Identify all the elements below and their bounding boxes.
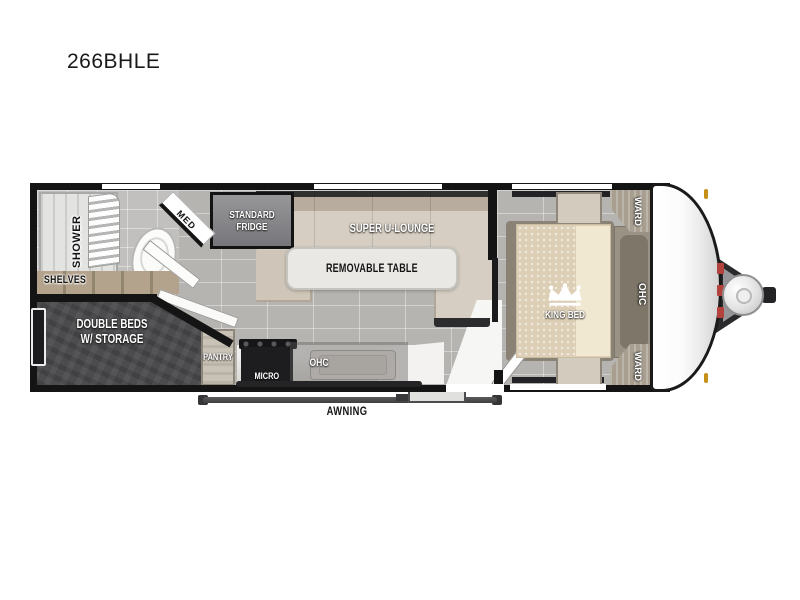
window-top-bedroom (512, 184, 612, 189)
fridge-label: STANDARD FRIDGE (225, 209, 280, 233)
double-beds-label-line1: DOUBLE BEDS (62, 317, 162, 332)
floorplan-canvas: 266BHLE MED SHOWER SHELVES STANDARD FRID… (0, 0, 800, 600)
bedroom-partition-wall (488, 190, 497, 260)
awning-label: AWNING (312, 404, 382, 418)
double-beds-label-line2: W/ STORAGE (62, 332, 162, 347)
window-bottom-bedroom (510, 384, 606, 390)
bedroom-sliding-door (492, 258, 498, 322)
wardrobe-top-label: WARD (629, 193, 643, 231)
double-beds-label: DOUBLE BEDS W/ STORAGE (62, 317, 162, 347)
kitchen-ohc-label: OHC (301, 357, 337, 369)
shower-label: SHOWER (70, 200, 84, 284)
entry-door-opening (446, 384, 504, 392)
bunk-room-window (31, 308, 46, 366)
front-cap (650, 183, 722, 392)
pantry-label: PANTRY (203, 352, 233, 363)
shower-door (88, 192, 120, 268)
hitch-coupler (762, 287, 776, 303)
clearance-light-bottom (704, 373, 708, 383)
shelves-label: SHELVES (44, 274, 86, 286)
frame-marker-3 (717, 307, 724, 318)
propane-tank (722, 274, 764, 316)
window-top-bathroom (102, 184, 160, 189)
crown-icon (546, 283, 584, 307)
table-label: REMOVABLE TABLE (326, 263, 418, 275)
king-bed-label: KING BED (539, 309, 590, 321)
u-lounge-base (434, 318, 490, 327)
counter-base (236, 381, 422, 387)
nightstand-bottom (556, 355, 602, 386)
refrigerator: STANDARD FRIDGE (210, 192, 294, 249)
removable-table: REMOVABLE TABLE (286, 247, 458, 290)
frame-marker-1 (717, 263, 724, 274)
window-top-lounge (314, 184, 442, 189)
lounge-label: SUPER U-LOUNGE (330, 221, 455, 235)
bathroom-wall (30, 294, 157, 302)
model-title: 266BHLE (67, 50, 160, 74)
bedroom-ohc-label: OHC (634, 262, 648, 326)
nightstand-top (556, 192, 602, 225)
clearance-light-top (704, 189, 708, 199)
wardrobe-bottom-label: WARD (629, 350, 643, 384)
